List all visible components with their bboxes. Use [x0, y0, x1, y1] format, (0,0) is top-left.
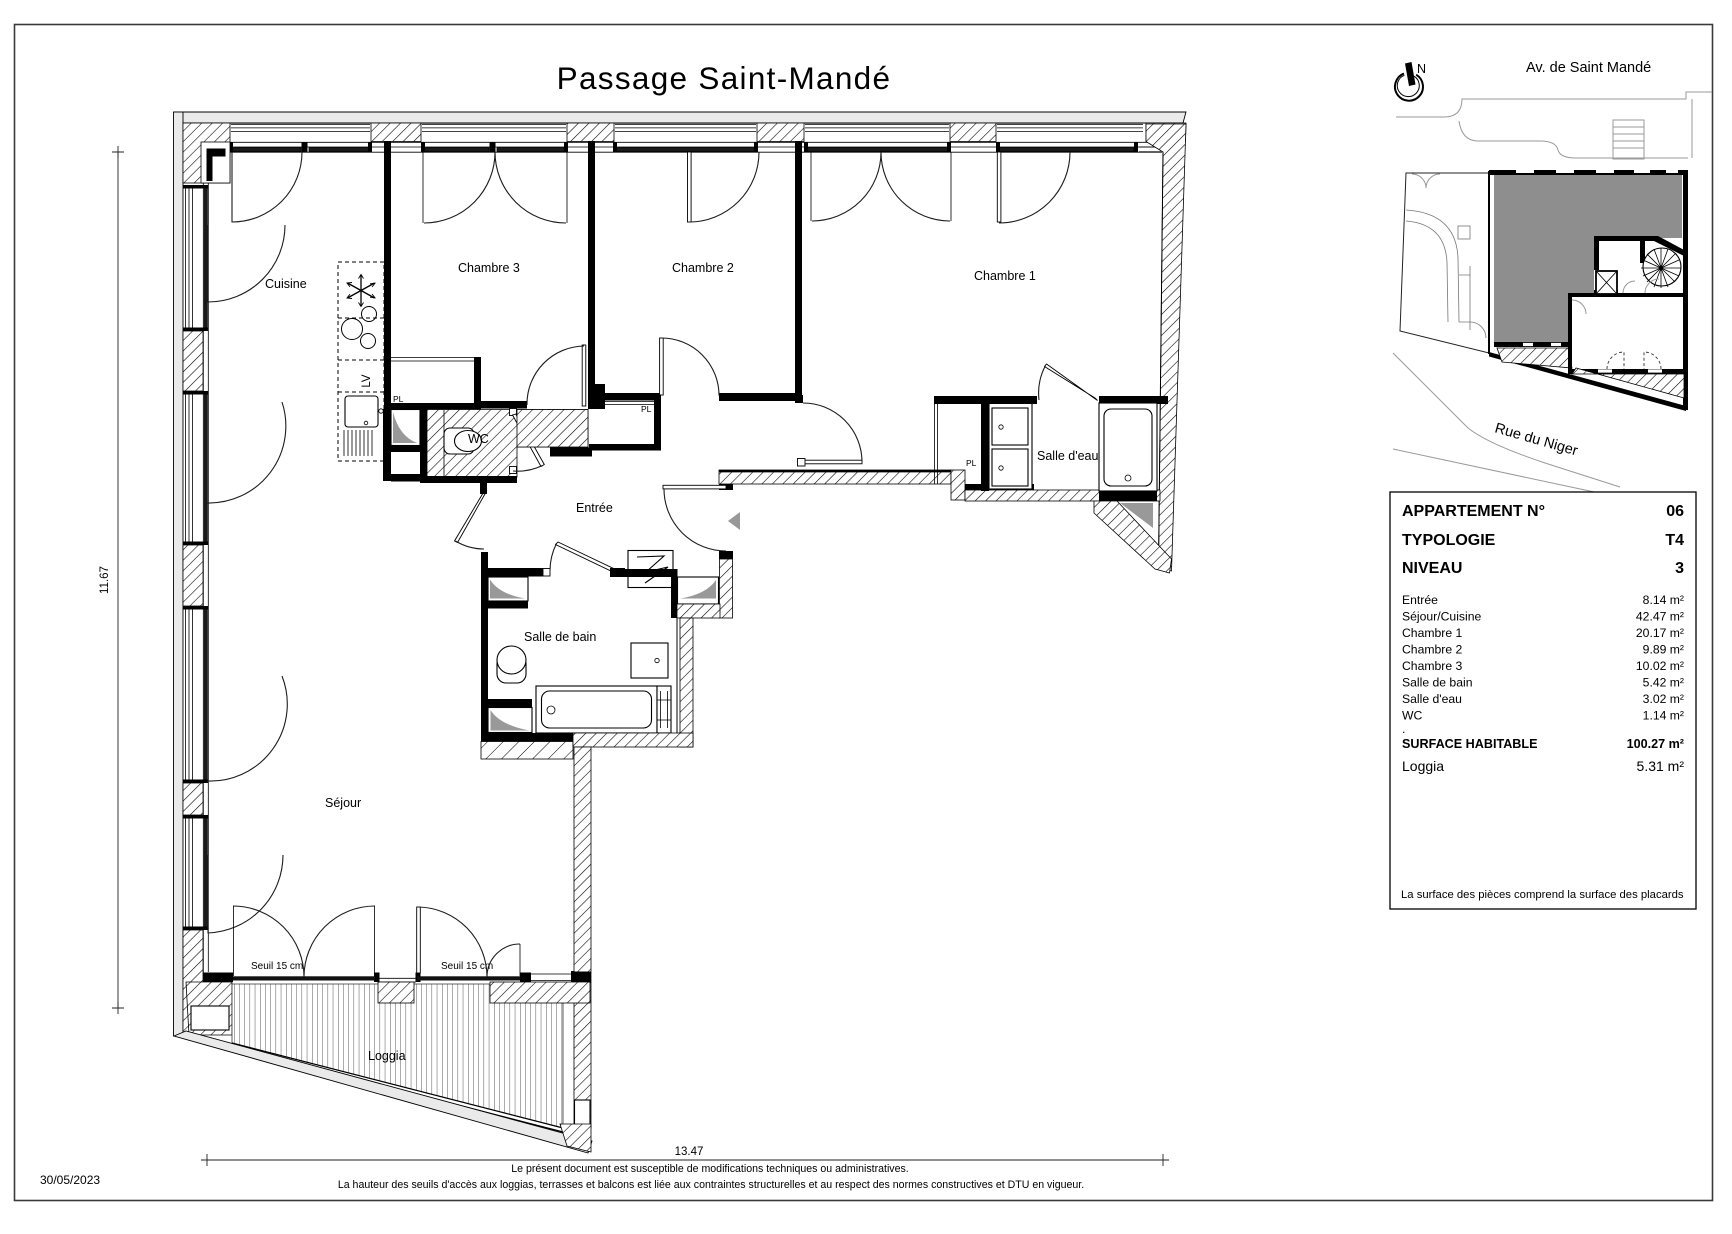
svg-text:Chambre 1: Chambre 1 — [974, 269, 1036, 283]
svg-text:La hauteur des seuils d'accès: La hauteur des seuils d'accès aux loggia… — [338, 1179, 1084, 1191]
svg-text:Salle de bain: Salle de bain — [1402, 676, 1472, 690]
svg-text:30/05/2023: 30/05/2023 — [40, 1173, 100, 1187]
svg-text:.: . — [1402, 722, 1405, 736]
svg-text:Entrée: Entrée — [576, 501, 613, 515]
svg-text:NIVEAU: NIVEAU — [1402, 560, 1462, 577]
svg-text:APPARTEMENT N°: APPARTEMENT N° — [1402, 503, 1545, 520]
svg-text:Salle d'eau: Salle d'eau — [1402, 692, 1462, 706]
svg-text:PL: PL — [641, 404, 652, 414]
svg-text:Av. de Saint Mandé: Av. de Saint Mandé — [1526, 60, 1651, 76]
svg-text:Chambre 2: Chambre 2 — [1402, 643, 1463, 657]
svg-text:TYPOLOGIE: TYPOLOGIE — [1402, 532, 1496, 549]
svg-text:Entrée: Entrée — [1402, 593, 1438, 607]
svg-text:PL: PL — [393, 394, 404, 404]
svg-text:1.14 m²: 1.14 m² — [1643, 709, 1684, 723]
svg-text:3: 3 — [1675, 560, 1684, 577]
svg-text:20.17 m²: 20.17 m² — [1636, 626, 1684, 640]
svg-text:WC: WC — [1402, 709, 1423, 723]
svg-text:WC: WC — [468, 432, 489, 446]
svg-text:42.47 m²: 42.47 m² — [1636, 610, 1684, 624]
svg-text:13.47: 13.47 — [675, 1146, 704, 1158]
svg-text:10.02 m²: 10.02 m² — [1636, 659, 1684, 673]
svg-text:Seuil 15 cm: Seuil 15 cm — [441, 961, 493, 972]
svg-text:Le présent document est suscep: Le présent document est susceptible de m… — [511, 1163, 909, 1175]
svg-text:Seuil 15 cm: Seuil 15 cm — [251, 961, 303, 972]
svg-text:Cuisine: Cuisine — [265, 277, 307, 291]
svg-text:LV: LV — [361, 374, 373, 388]
svg-text:Chambre 1: Chambre 1 — [1402, 626, 1463, 640]
svg-text:Loggia: Loggia — [1402, 758, 1444, 774]
svg-text:Chambre 3: Chambre 3 — [458, 261, 520, 275]
svg-text:5.31 m²: 5.31 m² — [1637, 758, 1685, 774]
svg-text:N: N — [1417, 62, 1426, 76]
svg-text:Salle d'eau: Salle d'eau — [1037, 449, 1099, 463]
svg-text:9.89 m²: 9.89 m² — [1643, 643, 1684, 657]
svg-text:3.02 m²: 3.02 m² — [1643, 692, 1684, 706]
svg-text:Loggia: Loggia — [368, 1049, 406, 1063]
svg-text:5.42 m²: 5.42 m² — [1643, 676, 1684, 690]
svg-text:100.27 m²: 100.27 m² — [1627, 737, 1684, 751]
svg-text:SURFACE HABITABLE: SURFACE HABITABLE — [1402, 737, 1538, 751]
svg-text:11.67: 11.67 — [99, 566, 111, 594]
svg-text:PL: PL — [966, 458, 977, 468]
svg-text:06: 06 — [1666, 503, 1684, 520]
svg-text:T4: T4 — [1665, 532, 1684, 549]
svg-text:Salle de bain: Salle de bain — [524, 630, 596, 644]
svg-text:Séjour/Cuisine: Séjour/Cuisine — [1402, 610, 1481, 624]
svg-text:Chambre 3: Chambre 3 — [1402, 659, 1463, 673]
svg-text:Chambre 2: Chambre 2 — [672, 261, 734, 275]
svg-text:Passage Saint-Mandé: Passage Saint-Mandé — [557, 60, 892, 96]
svg-text:La surface des pièces comprend: La surface des pièces comprend la surfac… — [1401, 889, 1684, 901]
svg-text:Séjour: Séjour — [325, 796, 361, 810]
svg-text:8.14 m²: 8.14 m² — [1643, 593, 1684, 607]
